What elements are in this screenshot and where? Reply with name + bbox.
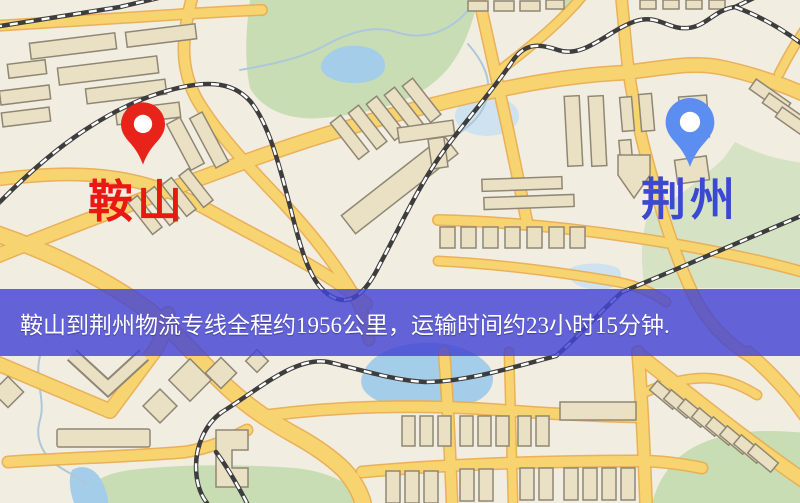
- route-info-text: 鞍山到荆州物流专线全程约1956公里，运输时间约23小时15分钟.: [0, 306, 670, 340]
- destination-city-label: 荆州: [641, 178, 739, 223]
- origin-city-label: 鞍山: [88, 180, 186, 225]
- map-view: 鞍山 荆州 鞍山到荆州物流专线全程约1956公里，运输时间约23小时15分钟.: [0, 0, 800, 503]
- route-info-banner: 鞍山到荆州物流专线全程约1956公里，运输时间约23小时15分钟.: [0, 289, 800, 356]
- destination-pin-icon: [665, 98, 715, 167]
- destination-pin: [665, 98, 715, 167]
- origin-pin: [121, 102, 165, 165]
- origin-pin-icon: [121, 102, 165, 165]
- map-canvas: [0, 0, 800, 503]
